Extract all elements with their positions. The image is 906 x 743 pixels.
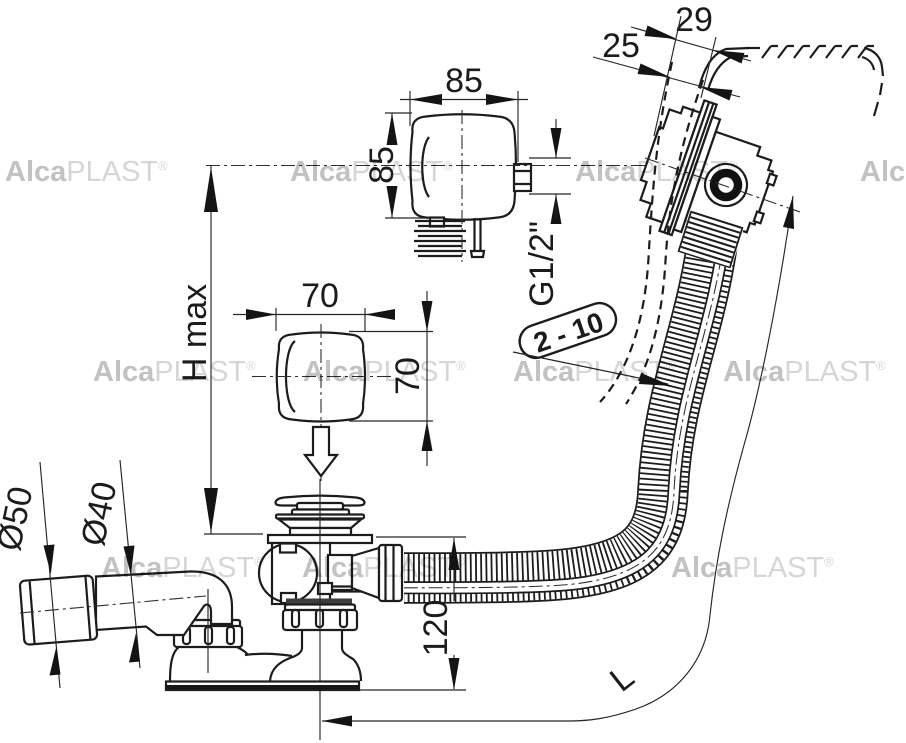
svg-text:AlcaPLAST®: AlcaPLAST®	[290, 156, 453, 188]
svg-text:AlcaPLAST®: AlcaPLAST®	[513, 356, 676, 388]
svg-text:AlcaPLAST®: AlcaPLAST®	[101, 552, 264, 584]
svg-text:70: 70	[301, 277, 339, 315]
svg-text:AlcaPLAST®: AlcaPLAST®	[303, 356, 466, 388]
svg-text:120: 120	[417, 600, 455, 657]
svg-text:AlcaPLAST®: AlcaPLAST®	[575, 156, 738, 188]
svg-text:AlcaPLAST®: AlcaPLAST®	[302, 552, 465, 584]
svg-text:AlcaPLAST®: AlcaPLAST®	[723, 356, 886, 388]
svg-text:29: 29	[675, 1, 713, 39]
svg-text:AlcaPLAST®: AlcaPLAST®	[5, 156, 168, 188]
svg-text:85: 85	[445, 62, 483, 100]
svg-text:G1/2": G1/2"	[523, 221, 561, 307]
svg-text:AlcaPLAST®: AlcaPLAST®	[93, 356, 256, 388]
svg-text:25: 25	[602, 27, 640, 65]
svg-text:AlcaPLAST®: AlcaPLAST®	[671, 552, 834, 584]
svg-text:AlcaPLAST®: AlcaPLAST®	[860, 156, 906, 188]
